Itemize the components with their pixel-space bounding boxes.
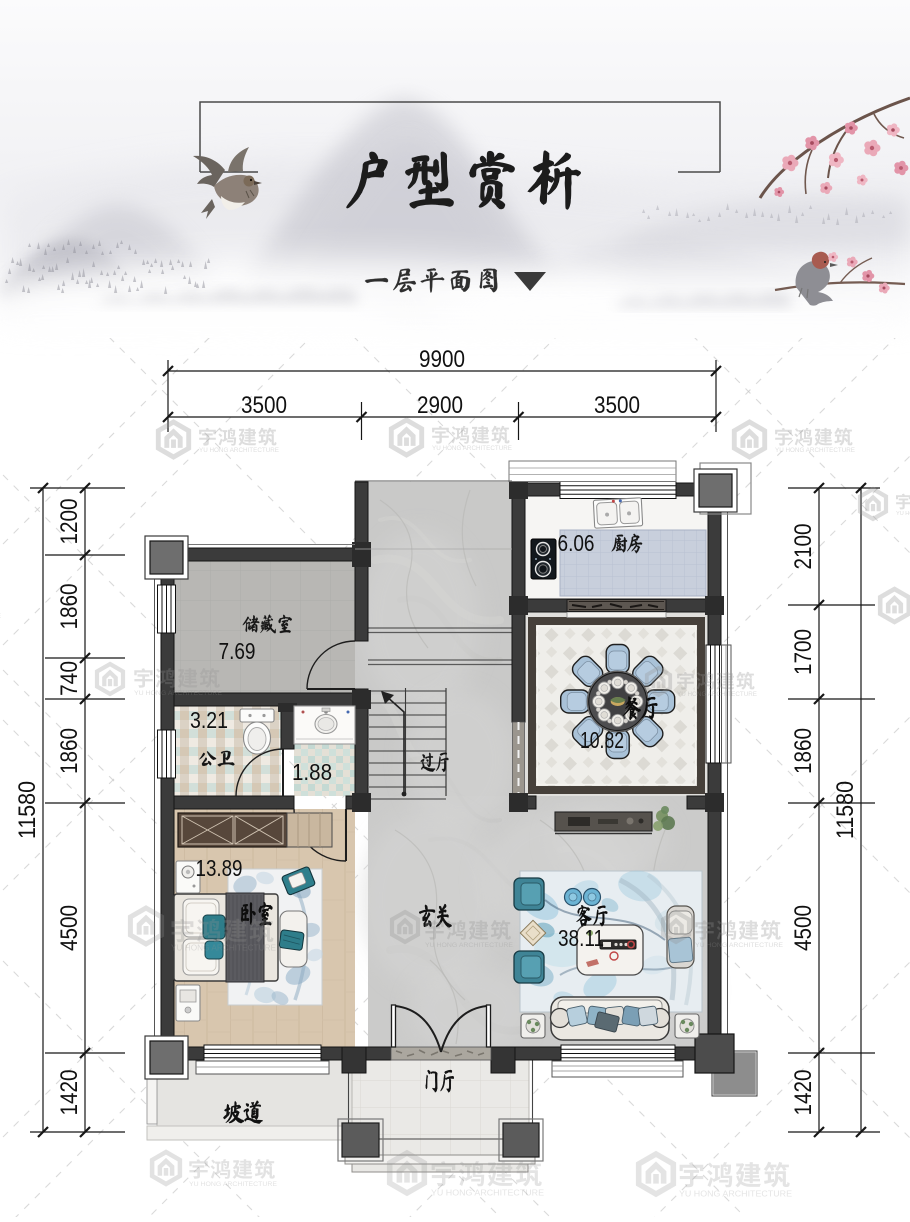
svg-text:6.06: 6.06 bbox=[558, 530, 595, 556]
svg-text:11580: 11580 bbox=[14, 781, 41, 839]
svg-text:YU HONG ARCHITECTURE: YU HONG ARCHITECTURE bbox=[134, 690, 223, 697]
svg-text:3500: 3500 bbox=[241, 392, 287, 419]
svg-text:YU HONG ARCHITECTURE: YU HONG ARCHITECTURE bbox=[189, 1181, 278, 1188]
svg-text:3500: 3500 bbox=[594, 392, 640, 419]
svg-text:1420: 1420 bbox=[56, 1070, 83, 1116]
svg-text:11580: 11580 bbox=[832, 781, 859, 839]
svg-text:YU HONG ARCHITECTURE: YU HONG ARCHITECTURE bbox=[677, 691, 757, 698]
svg-text:1420: 1420 bbox=[790, 1070, 817, 1116]
svg-text:9900: 9900 bbox=[419, 346, 465, 373]
svg-text:YU HONG ARCHITECTURE: YU HONG ARCHITECTURE bbox=[775, 447, 855, 454]
svg-text:2900: 2900 bbox=[417, 392, 463, 419]
svg-text:YU HONG ARCHITECTURE: YU HONG ARCHITECTURE bbox=[695, 942, 784, 949]
svg-text:10.82: 10.82 bbox=[580, 727, 624, 753]
svg-text:1860: 1860 bbox=[56, 584, 83, 630]
svg-text:7.69: 7.69 bbox=[219, 638, 256, 664]
svg-text:13.89: 13.89 bbox=[196, 855, 243, 881]
svg-text:3.21: 3.21 bbox=[190, 707, 228, 733]
svg-text:2100: 2100 bbox=[790, 524, 817, 570]
svg-text:4500: 4500 bbox=[790, 905, 817, 951]
svg-text:1200: 1200 bbox=[56, 499, 83, 545]
svg-text:1700: 1700 bbox=[790, 629, 817, 675]
svg-text:YU HONG ARCHITECTURE: YU HONG ARCHITECTURE bbox=[896, 511, 910, 517]
svg-text:YU HONG ARCHITECTURE: YU HONG ARCHITECTURE bbox=[432, 445, 512, 452]
svg-text:38.11: 38.11 bbox=[558, 925, 604, 951]
svg-text:1860: 1860 bbox=[790, 728, 817, 774]
svg-text:YU HONG ARCHITECTURE: YU HONG ARCHITECTURE bbox=[0, 613, 1, 620]
svg-text:YU HONG ARCHITECTURE: YU HONG ARCHITECTURE bbox=[425, 942, 514, 949]
svg-text:1.88: 1.88 bbox=[292, 759, 332, 785]
svg-text:YU HONG ARCHITECTURE: YU HONG ARCHITECTURE bbox=[199, 447, 279, 454]
svg-text:4500: 4500 bbox=[56, 905, 83, 951]
svg-text:YU HONG ARCHITECTURE: YU HONG ARCHITECTURE bbox=[171, 944, 276, 953]
svg-text:YU HONG ARCHITECTURE: YU HONG ARCHITECTURE bbox=[679, 1188, 792, 1198]
svg-text:1860: 1860 bbox=[56, 728, 83, 774]
svg-text:740: 740 bbox=[56, 661, 83, 696]
svg-text:YU HONG ARCHITECTURE: YU HONG ARCHITECTURE bbox=[431, 1187, 544, 1197]
